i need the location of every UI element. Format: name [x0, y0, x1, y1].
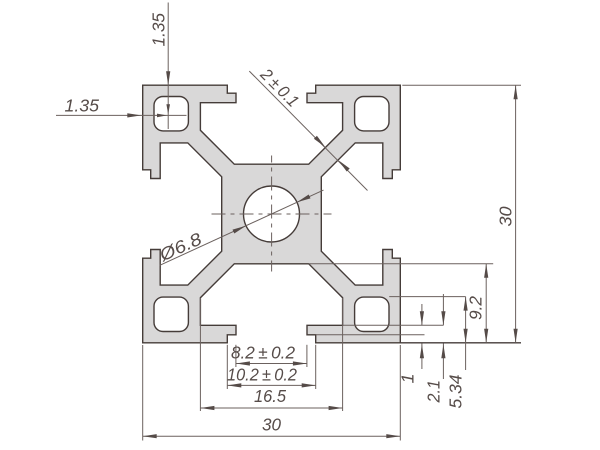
- svg-text:5.34: 5.34: [446, 374, 466, 408]
- svg-text:8.2 ± 0.2: 8.2 ± 0.2: [231, 343, 295, 363]
- svg-text:30: 30: [496, 206, 516, 226]
- svg-text:1: 1: [398, 374, 418, 384]
- svg-text:10.2 ± 0.2: 10.2 ± 0.2: [227, 365, 297, 385]
- svg-text:1.35: 1.35: [149, 13, 169, 47]
- svg-text:2.1: 2.1: [424, 380, 444, 403]
- svg-text:1.35: 1.35: [65, 95, 100, 115]
- svg-text:2 ± 0.1: 2 ± 0.1: [256, 64, 303, 111]
- svg-text:9.2: 9.2: [466, 296, 486, 320]
- svg-text:Ø6.8: Ø6.8: [155, 228, 205, 265]
- svg-text:16.5: 16.5: [254, 386, 286, 406]
- svg-text:30: 30: [262, 415, 281, 435]
